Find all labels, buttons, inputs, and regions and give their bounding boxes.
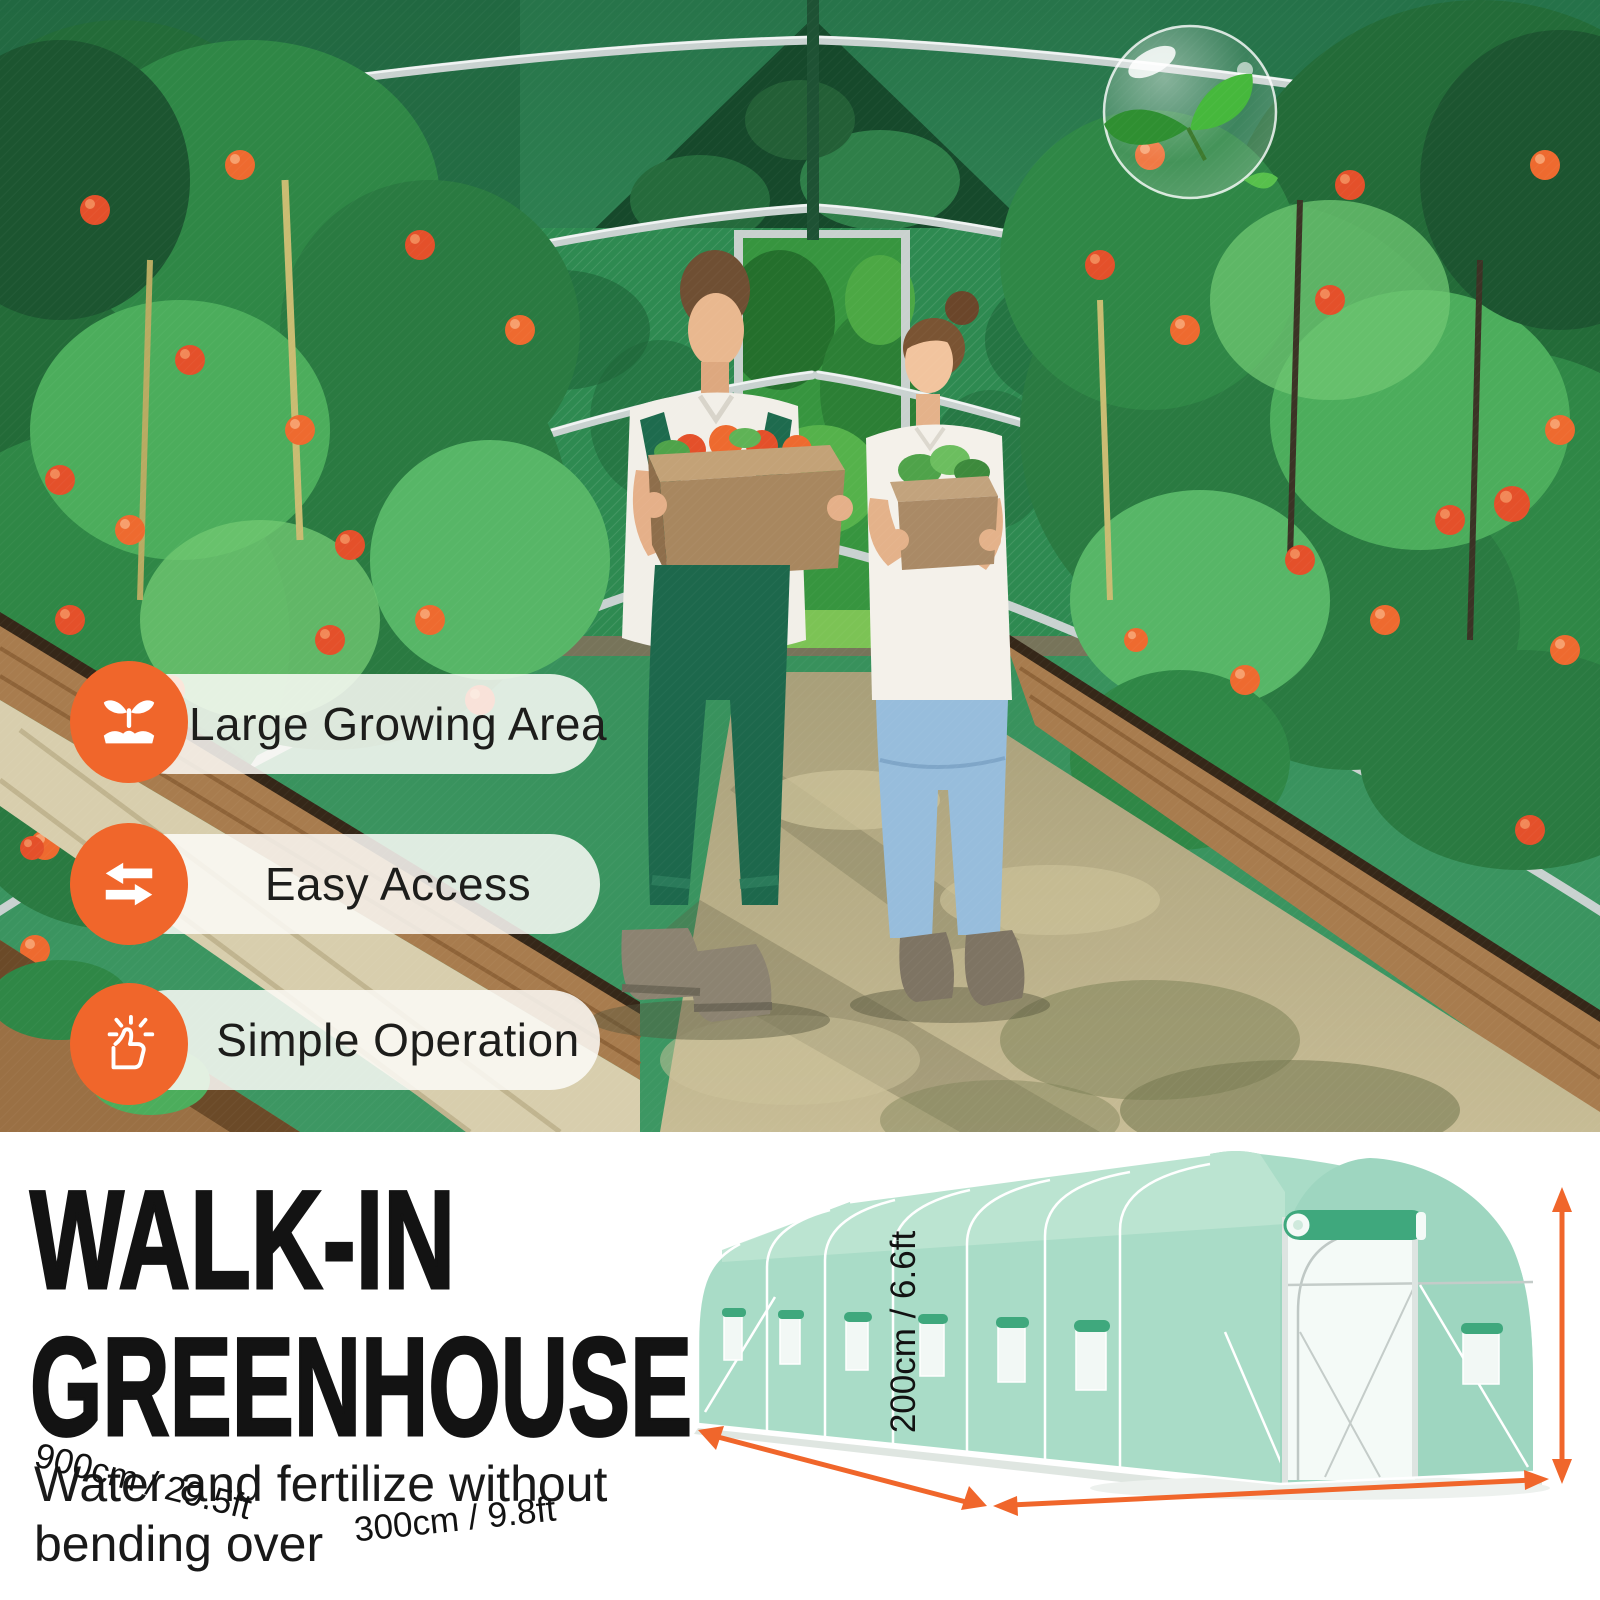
dimension-diagram (680, 1132, 1600, 1582)
height-dimension-label: 200cm / 6.6ft (884, 1231, 924, 1433)
feature-pill-easy-access: Easy Access (118, 834, 600, 934)
feature-pill-large-growing-area: Large Growing Area (118, 674, 600, 774)
rolled-door (1285, 1210, 1426, 1240)
feature-label: Large Growing Area (189, 697, 607, 751)
feature-badge-2 (70, 823, 188, 945)
thumbs-up-icon (98, 1013, 160, 1075)
feature-badge-3 (70, 983, 188, 1105)
headline-line1: WALK-IN (30, 1170, 455, 1310)
greenhouse-photo: Large Growing Area Easy Access Simple Op… (0, 0, 1600, 1132)
product-banner: Large Growing Area Easy Access Simple Op… (0, 0, 1600, 1600)
transfer-arrows-icon (98, 853, 160, 915)
photo-scene (0, 0, 1600, 1132)
feature-pill-simple-operation: Simple Operation (118, 990, 600, 1090)
feature-badge-1 (70, 661, 188, 783)
feature-label: Easy Access (265, 857, 531, 911)
diagram-greenhouse (698, 1151, 1533, 1484)
headline-line2: GREENHOUSE (30, 1317, 692, 1457)
info-section: WALK-IN GREENHOUSE Water and fertilize w… (0, 1132, 1600, 1600)
sprout-icon (98, 691, 160, 753)
feature-label: Simple Operation (216, 1013, 579, 1067)
